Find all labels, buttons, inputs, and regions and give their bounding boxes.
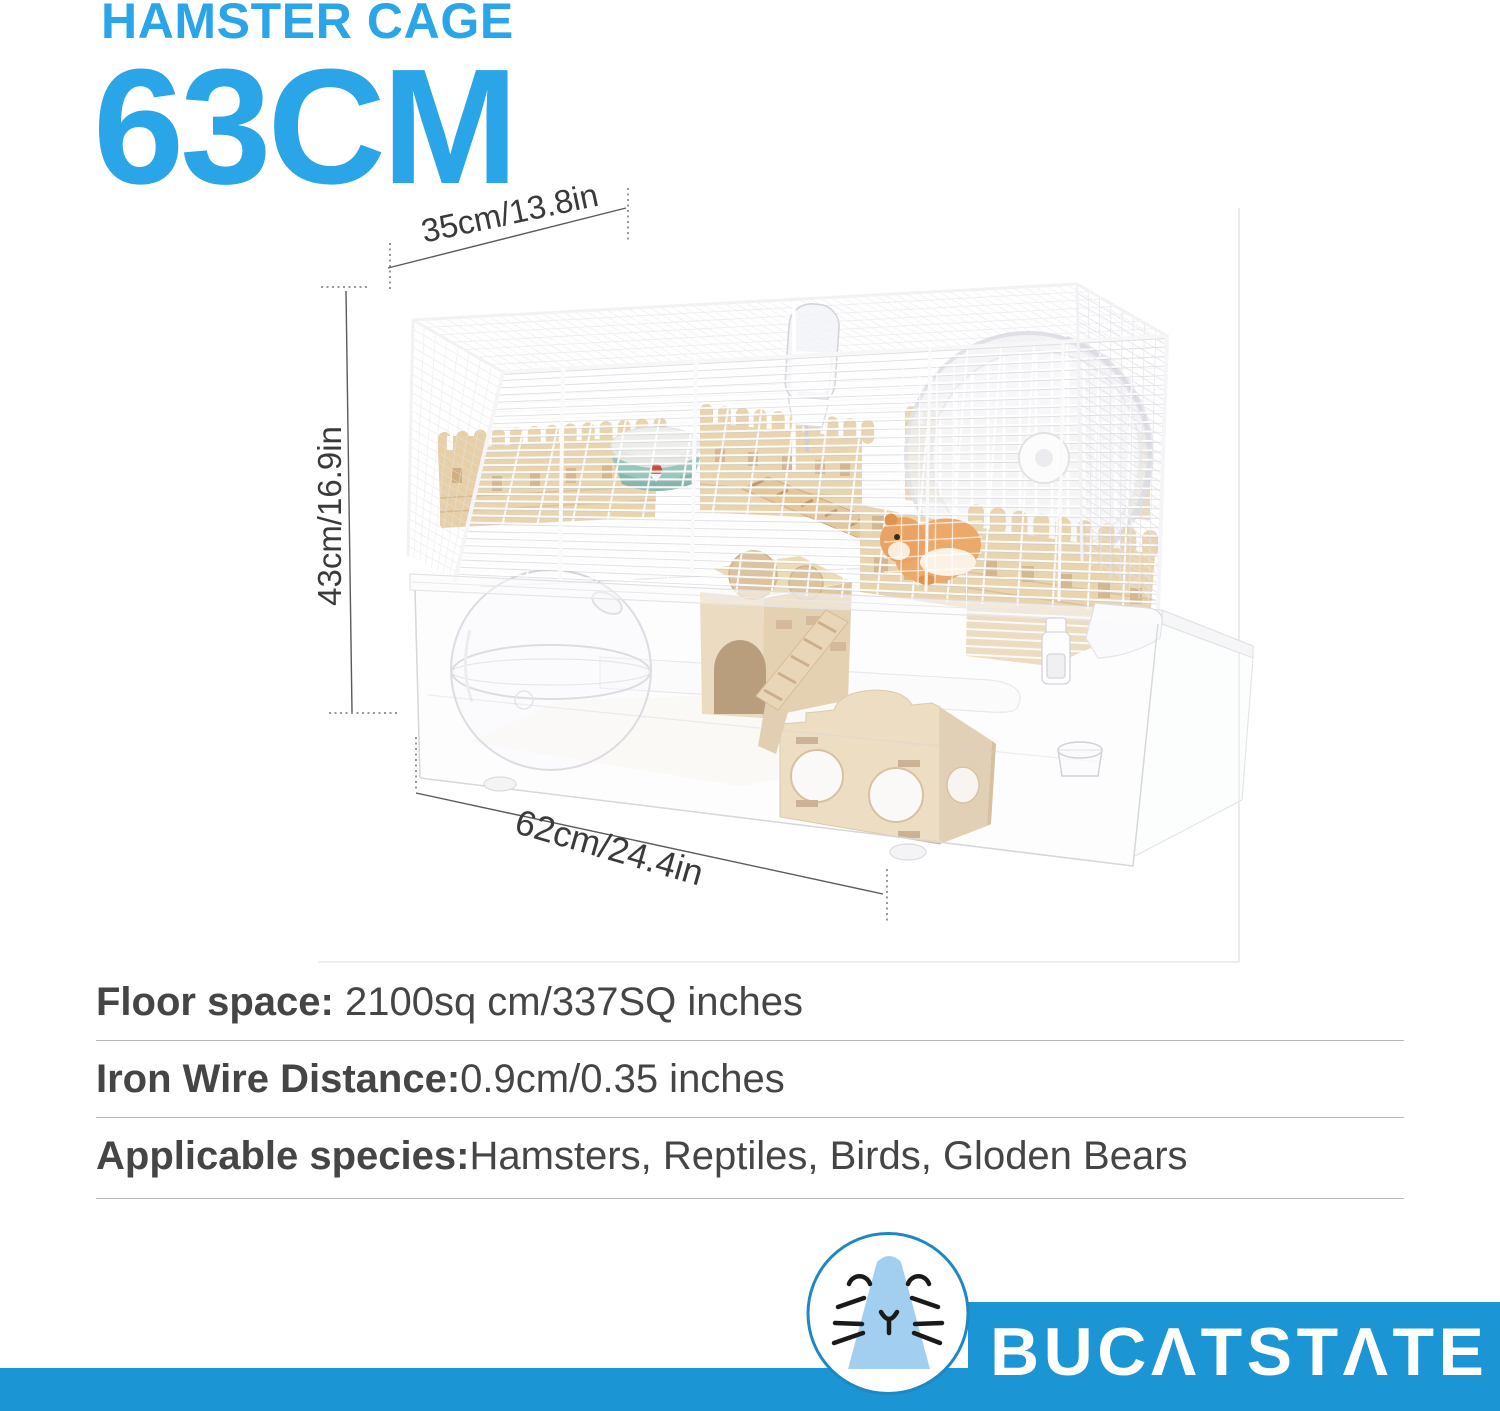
svg-text:43cm/16.9in: 43cm/16.9in (311, 426, 348, 606)
svg-text:62cm/24.4in: 62cm/24.4in (511, 802, 708, 894)
